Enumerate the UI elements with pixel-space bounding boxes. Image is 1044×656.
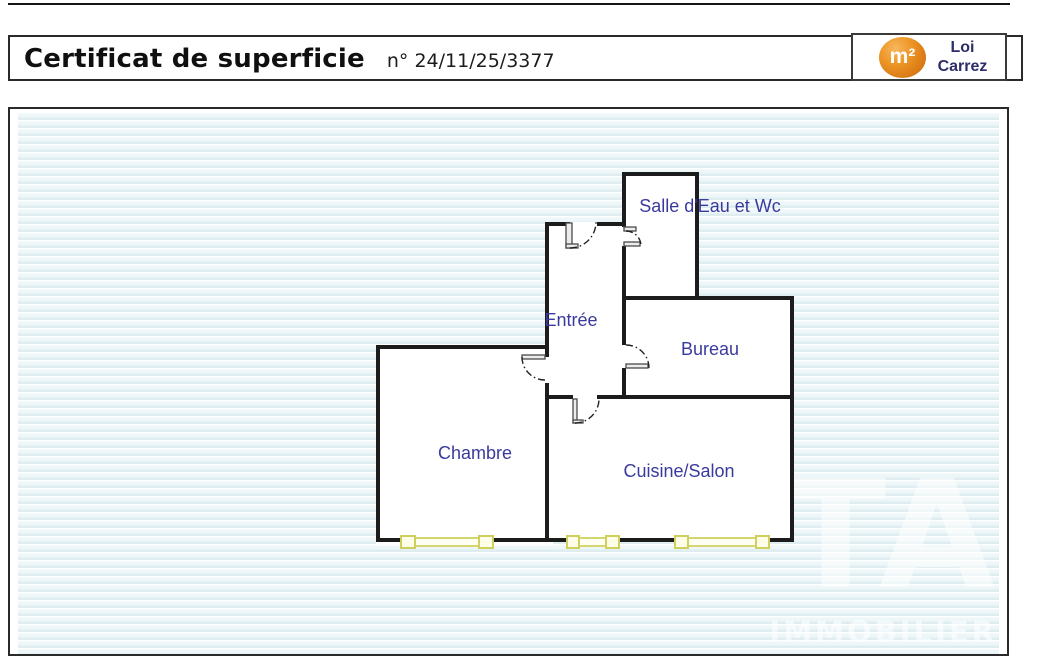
wall (545, 383, 549, 542)
room-area-salle-deau-wc (622, 172, 699, 304)
wall (622, 368, 626, 399)
top-rule (8, 3, 1010, 5)
wall (622, 172, 626, 227)
loi-carrez-logo: m² Loi Carrez (851, 33, 1007, 81)
window-end (675, 536, 688, 548)
window-end (401, 536, 415, 548)
wall (597, 222, 626, 226)
room-label-chambre: Chambre (438, 443, 512, 463)
m2-badge-icon: m² (879, 37, 926, 78)
wall (622, 172, 699, 176)
room-label-entree: Entrée (544, 310, 597, 330)
wall (622, 246, 626, 300)
logo-line-2: Carrez (926, 57, 999, 76)
window-end (479, 536, 493, 548)
door-jamb (624, 242, 640, 246)
door-jamb (624, 227, 636, 231)
window-cuisine-right (675, 536, 769, 548)
window-chambre (401, 536, 493, 548)
wall (376, 345, 549, 349)
window-end (606, 536, 619, 548)
wall (790, 296, 794, 542)
window-end (567, 536, 579, 548)
door-leaf (522, 355, 545, 359)
wall (622, 300, 626, 345)
certificate-number: n° 24/11/25/3377 (387, 50, 555, 72)
window-bar (687, 538, 758, 546)
window-bar (413, 538, 481, 546)
floor-plan-frame: TA IMMOBILIER (8, 107, 1009, 656)
wall (622, 296, 794, 300)
window-end (756, 536, 769, 548)
room-label-cuisine-salon: Cuisine/Salon (623, 461, 734, 481)
page-title: Certificat de superficie (24, 37, 365, 81)
wall (376, 345, 380, 542)
wall (545, 395, 573, 399)
room-label-bureau: Bureau (681, 339, 739, 359)
room-areas (376, 172, 794, 546)
door-leaf (626, 364, 648, 368)
room-label-salle-deau-wc: Salle d'Eau et Wc (639, 196, 781, 216)
wall (597, 395, 794, 399)
window-cuisine-left (567, 536, 619, 548)
windows (401, 536, 769, 548)
logo-line-1: Loi (926, 38, 999, 57)
window-bar (578, 538, 608, 546)
loi-carrez-label: Loi Carrez (926, 38, 1005, 76)
wall (695, 172, 699, 300)
floor-plan-drawing: Salle d'Eau et Wc Entrée Bureau Chambre … (10, 109, 1007, 650)
